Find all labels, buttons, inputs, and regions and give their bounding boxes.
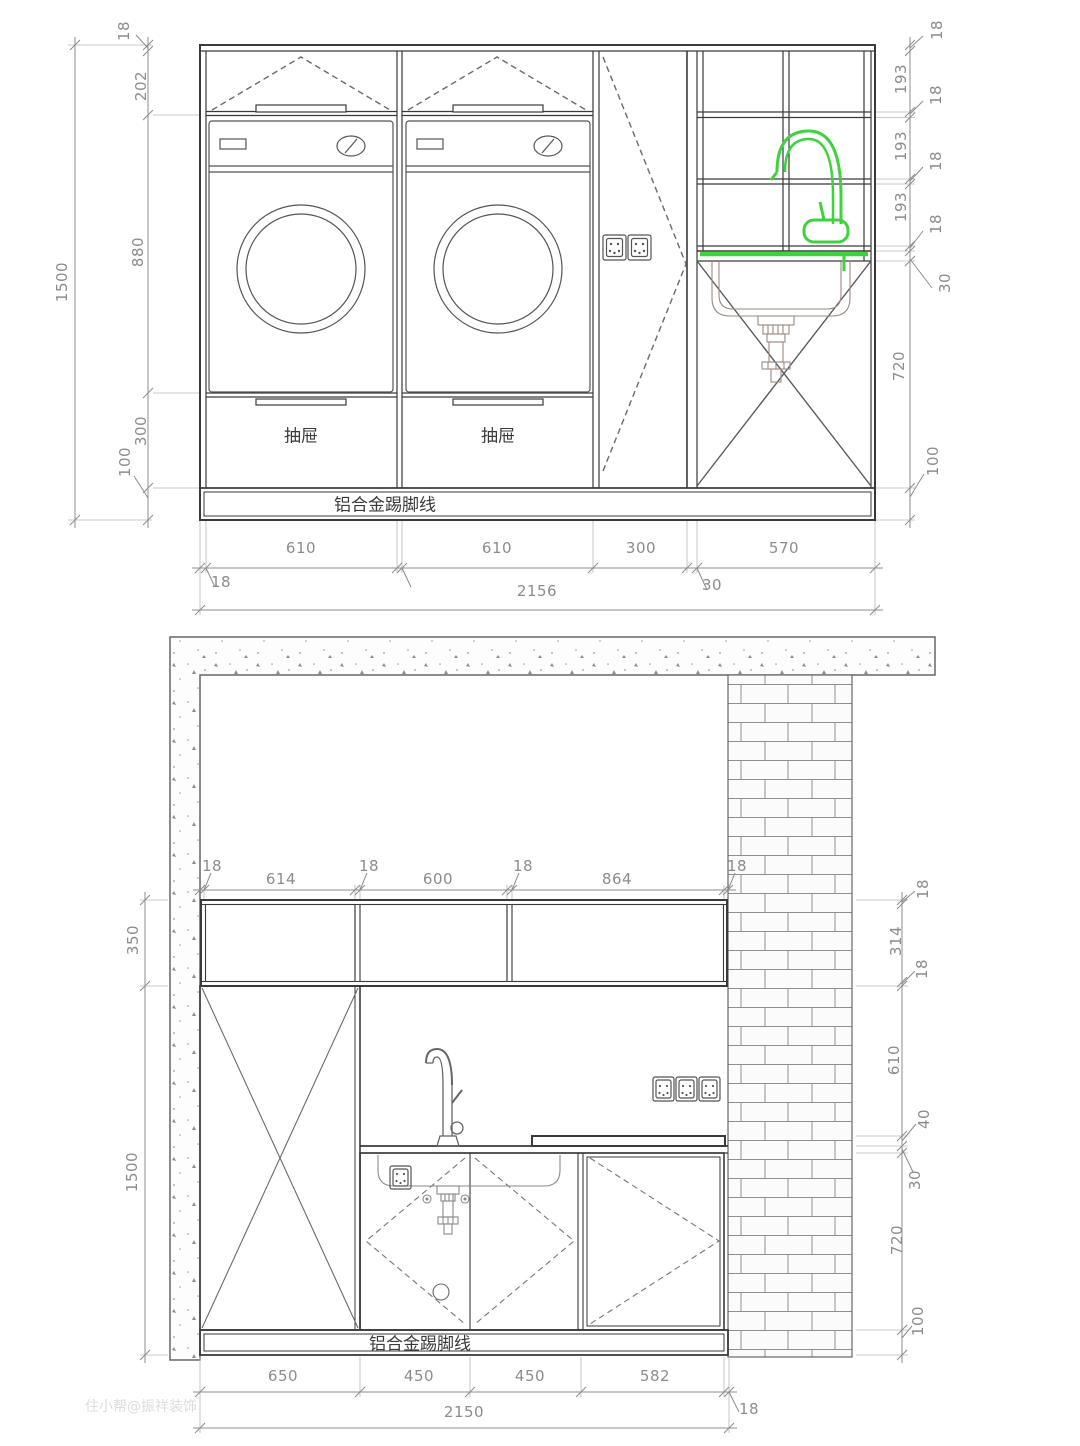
dim-top-bottom-3: 300 (626, 539, 656, 557)
dim-bot-bottom-0: 650 (268, 1367, 298, 1385)
flip-door-bay2 (402, 57, 593, 116)
triple-outlet-icon (653, 1077, 720, 1101)
dim-bot-top-2: 18 (359, 857, 379, 875)
sink-base-cabinet (697, 261, 871, 486)
dim-top-right-6: 18 (927, 214, 945, 234)
dim-bot-top-1: 614 (266, 870, 296, 888)
top-elevation-cabinet (200, 45, 875, 520)
tall-door-swing (603, 57, 686, 471)
dim-bot-bottom-2: 450 (515, 1367, 545, 1385)
dim-bot-top-6: 18 (727, 857, 747, 875)
cabinet-outlet-icon (390, 1166, 411, 1189)
dim-top-left-0: 18 (115, 21, 133, 41)
dim-bot-overall-width: 2150 (444, 1403, 484, 1421)
dim-bot-top-4: 18 (513, 857, 533, 875)
dim-top-left-4: 100 (116, 447, 134, 477)
dim-top-right-3: 193 (892, 131, 910, 161)
faucet-icon (700, 131, 868, 271)
dim-top-bottom-1: 18 (211, 573, 231, 591)
brick-wall (728, 675, 852, 1357)
sink-icon (712, 262, 850, 382)
dim-top-right-9: 100 (924, 446, 942, 476)
kitchen-faucet-icon (426, 1049, 463, 1146)
dim-top-right-7: 30 (936, 273, 954, 293)
dim-bot-right-2: 18 (913, 959, 931, 979)
dim-top-right-1: 193 (892, 64, 910, 94)
flip-door-bay1 (206, 57, 397, 116)
dim-bot-bottom-4: 18 (739, 1400, 759, 1418)
under-counter-sink-icon (378, 1155, 560, 1234)
power-outlet-icon (603, 235, 651, 260)
dim-top-bottom-2: 610 (482, 539, 512, 557)
dim-top-left-2: 880 (129, 237, 147, 267)
dim-bot-right-4: 40 (915, 1109, 933, 1129)
dim-top-bottom-5: 570 (769, 539, 799, 557)
dim-top-overall-width: 2156 (517, 582, 557, 600)
base-cabinets (360, 1153, 724, 1330)
kick-label-top: 铝合金踢脚线 (334, 491, 436, 516)
drawer-front-1 (206, 393, 397, 405)
dim-top-left-1: 202 (132, 71, 150, 101)
dim-top-right-0: 18 (928, 20, 946, 40)
drawer-label-1: 抽屉 (284, 422, 318, 447)
watermark: 住小帮@振祥装饰 (85, 1396, 197, 1416)
shelf-unit (697, 51, 871, 261)
wall-cabinets (201, 900, 727, 986)
kick-label-bottom: 铝合金踢脚线 (369, 1330, 471, 1355)
dim-top-left-3: 300 (132, 416, 150, 446)
dim-bot-bottom-1: 450 (404, 1367, 434, 1385)
countertop (360, 1136, 728, 1153)
washing-machine-1 (209, 121, 393, 392)
dim-bot-right-5: 30 (906, 1170, 924, 1190)
dim-bot-right-7: 100 (909, 1306, 927, 1336)
dim-top-bottom-0: 610 (286, 539, 316, 557)
dim-top-bottom-4: 30 (702, 576, 722, 594)
dim-top-right-4: 18 (927, 151, 945, 171)
dim-top-overall-height: 1500 (53, 262, 71, 302)
washing-machine-2 (406, 121, 590, 392)
elevation-drawings (0, 0, 1080, 1446)
dim-bot-bottom-3: 582 (640, 1367, 670, 1385)
dim-bot-top-3: 600 (423, 870, 453, 888)
dim-bot-right-0: 18 (914, 879, 932, 899)
dim-bot-top-0: 18 (202, 857, 222, 875)
cad-elevation-sheet: 1500 18 202 880 300 100 18 193 18 193 18… (0, 0, 1080, 1446)
dim-top-right-2: 18 (927, 85, 945, 105)
dim-bot-left-1: 1500 (123, 1152, 141, 1192)
tall-cabinet (200, 986, 360, 1330)
dim-bot-right-6: 720 (888, 1225, 906, 1255)
dim-bot-top-5: 864 (602, 870, 632, 888)
drawer-front-2 (402, 393, 593, 405)
dim-top-right-5: 193 (892, 192, 910, 222)
dim-bot-right-1: 314 (887, 926, 905, 956)
drawer-label-2: 抽屉 (481, 422, 515, 447)
dim-top-right-8: 720 (890, 351, 908, 381)
dim-bot-right-3: 610 (885, 1045, 903, 1075)
dim-bot-left-0: 350 (124, 925, 142, 955)
